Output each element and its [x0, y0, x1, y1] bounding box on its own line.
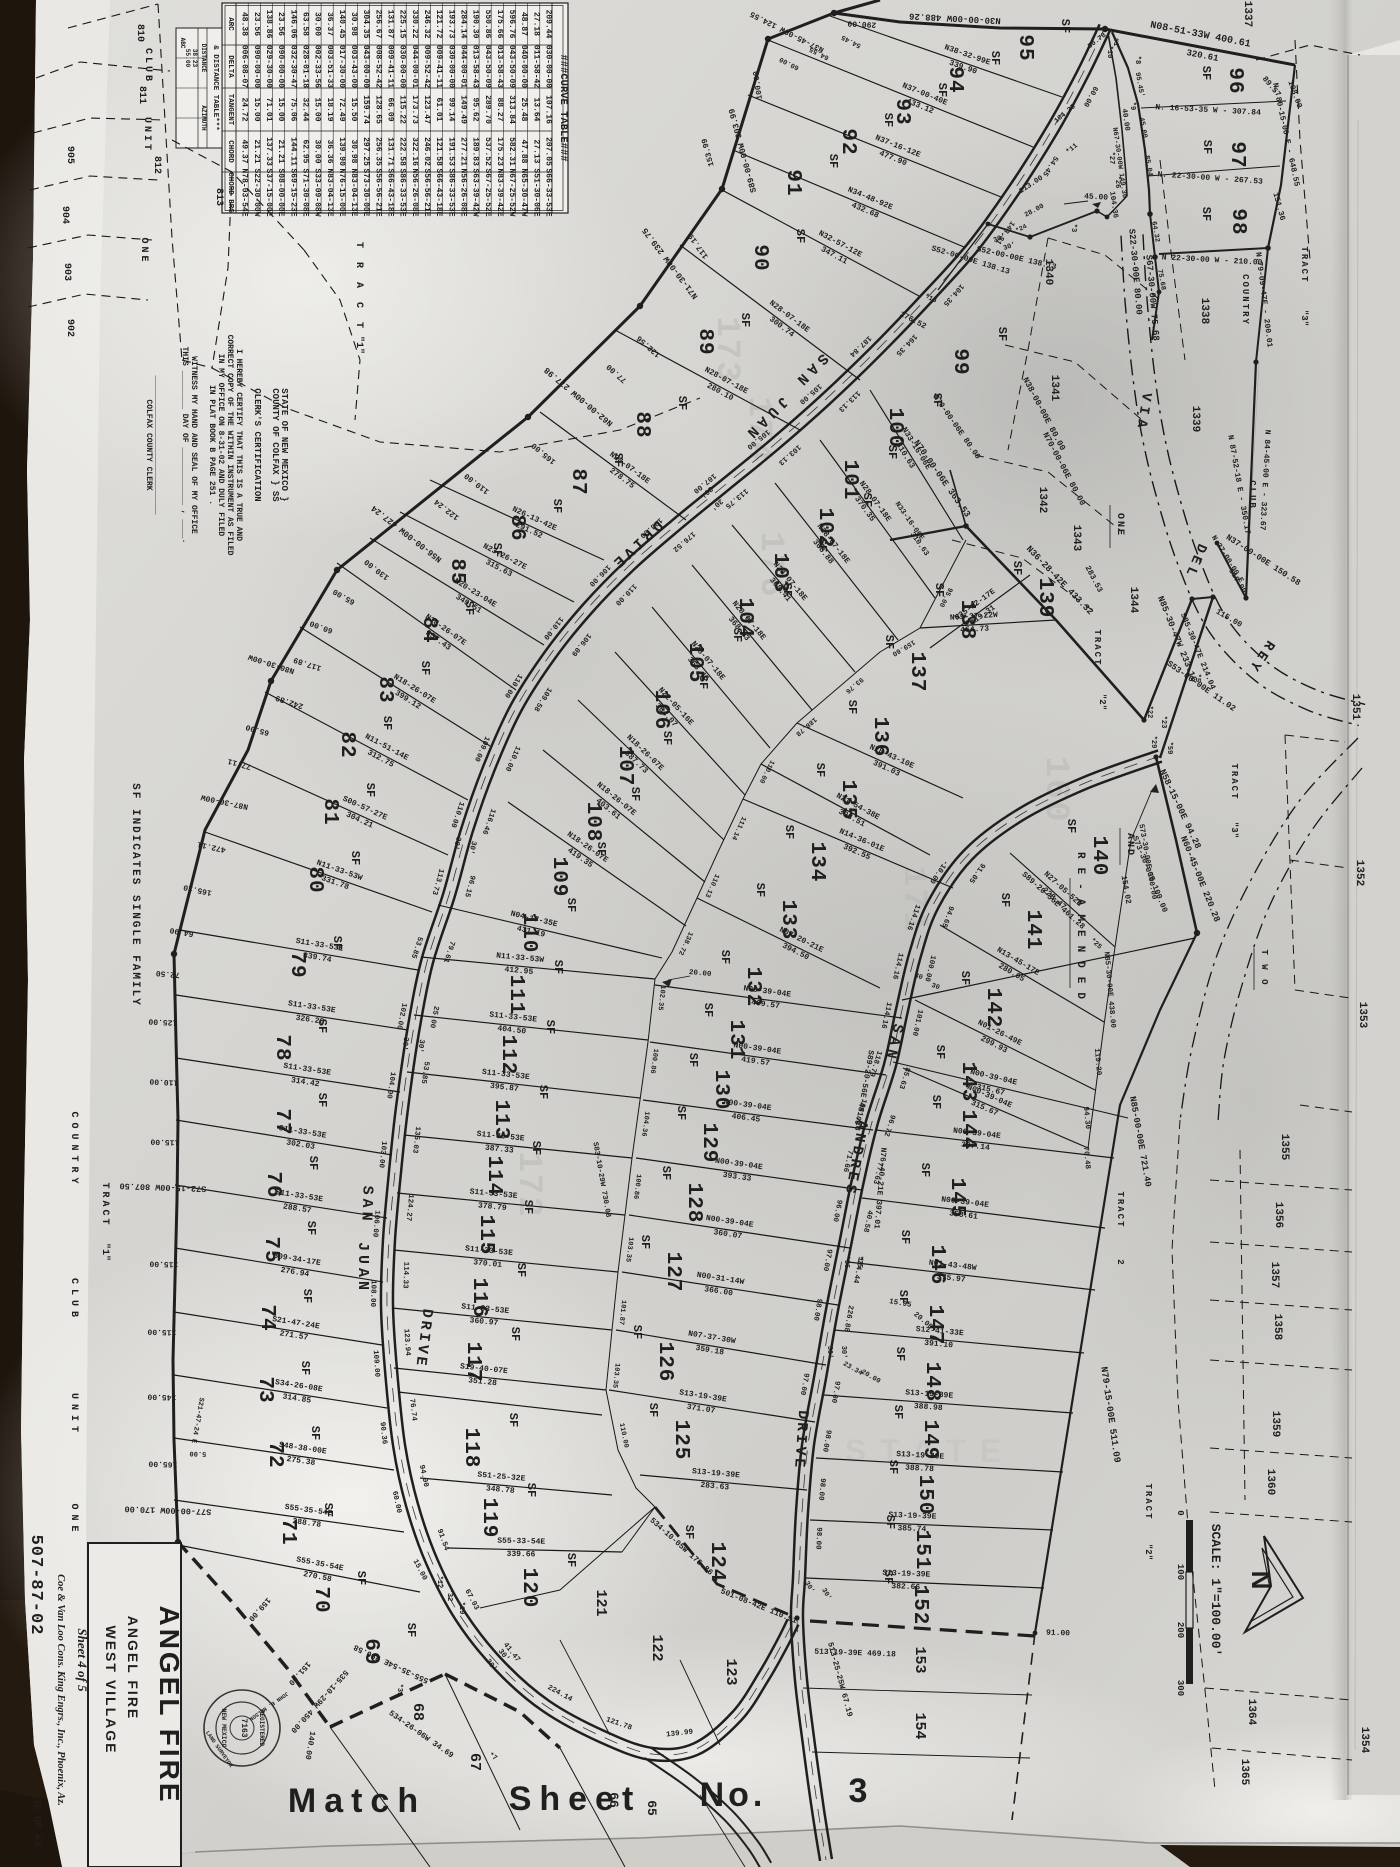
svg-text:1353: 1353	[1356, 1002, 1368, 1029]
svg-text:SF: SF	[363, 783, 377, 797]
svg-text:SF: SF	[660, 731, 674, 745]
svg-text:011-58-42: 011-58-42	[531, 45, 540, 88]
svg-text:No.: No.	[700, 1776, 767, 1814]
svg-text:15.50: 15.50	[349, 97, 358, 121]
svg-text:97: 97	[1225, 141, 1248, 168]
svg-text:SF: SF	[686, 1053, 700, 1067]
svg-text:23.56: 23.56	[252, 12, 261, 36]
svg-text:SF: SF	[330, 936, 344, 950]
svg-text:SF: SF	[611, 453, 625, 467]
svg-text:1343: 1343	[1070, 525, 1082, 552]
svg-text:ONE: ONE	[1114, 513, 1125, 537]
svg-text:*26: *26	[1113, 176, 1121, 189]
svg-text:CLERK'S CERTIFICATION: CLERK'S CERTIFICATION	[252, 388, 262, 501]
svg-text:330.22: 330.22	[410, 10, 419, 39]
svg-text:191.53: 191.53	[446, 137, 455, 166]
svg-text:193.73: 193.73	[446, 10, 455, 39]
svg-text:SF: SF	[1199, 66, 1213, 80]
svg-text:*10: *10	[1105, 46, 1113, 59]
svg-text:*35: *35	[842, 1256, 850, 1269]
svg-text:SF: SF	[793, 229, 807, 243]
svg-text:91.00: 91.00	[1046, 1629, 1071, 1639]
svg-text:95.62: 95.62	[471, 97, 480, 121]
svg-text:27.18: 27.18	[531, 12, 540, 36]
svg-text:TRACT: TRACT	[99, 1182, 110, 1227]
svg-text:COUNTRY: COUNTRY	[68, 1111, 79, 1188]
svg-text:ANGEL FIRE: ANGEL FIRE	[125, 1616, 141, 1721]
svg-text:009-41-11: 009-41-11	[386, 45, 395, 88]
svg-text:COLFAX COUNTY CLERK: COLFAX COUNTY CLERK	[144, 399, 153, 490]
svg-text:THIS ________ DAY OF _________: THIS ________ DAY OF ____________ , ____…	[180, 347, 189, 544]
svg-text:74: 74	[255, 1304, 278, 1331]
svg-text:67: 67	[466, 1753, 483, 1771]
svg-text:009-41-11: 009-41-11	[434, 45, 443, 88]
svg-text:SF: SF	[885, 445, 899, 459]
svg-text:131.87: 131.87	[386, 10, 395, 39]
svg-text:81: 81	[318, 798, 341, 825]
svg-text:SF: SF	[780, 583, 794, 597]
svg-text:84: 84	[417, 616, 440, 643]
svg-text:582.31: 582.31	[507, 137, 516, 166]
svg-text:1354: 1354	[1358, 1727, 1370, 1754]
svg-text:009-52-42: 009-52-42	[422, 45, 431, 88]
svg-text:5.00: 5.00	[189, 1449, 206, 1458]
svg-text:030-00-00: 030-00-00	[446, 45, 455, 88]
svg-text:246.02: 246.02	[422, 137, 431, 166]
svg-text:SF: SF	[536, 1085, 550, 1099]
svg-text:152: 152	[908, 1585, 931, 1626]
svg-text:N56-26-08E: N56-26-08E	[410, 168, 419, 216]
svg-text:1342: 1342	[1036, 487, 1048, 513]
svg-text:117: 117	[461, 1342, 484, 1383]
svg-text:SF: SF	[730, 628, 744, 642]
svg-text:ANGEL FIRE: ANGEL FIRE	[154, 1605, 185, 1804]
svg-text:SF: SF	[886, 1460, 900, 1474]
svg-text:109: 109	[547, 857, 570, 898]
svg-text:SF: SF	[404, 1623, 418, 1637]
svg-text:SF: SF	[315, 1093, 329, 1107]
svg-text:SF: SF	[1058, 19, 1072, 33]
svg-text:339.66: 339.66	[506, 1550, 535, 1560]
svg-text:DISTANCE: DISTANCE	[200, 44, 207, 73]
svg-text:*19: *19	[457, 1602, 465, 1615]
svg-text:SF: SF	[891, 1405, 905, 1419]
svg-text:SF: SF	[594, 842, 608, 856]
svg-text:101: 101	[838, 460, 861, 501]
svg-text:115.00: 115.00	[147, 1326, 176, 1336]
svg-text:146: 146	[925, 1245, 948, 1286]
svg-text:120: 120	[517, 1568, 540, 1609]
svg-text:SF: SF	[718, 950, 732, 964]
svg-text:114: 114	[482, 1156, 505, 1197]
svg-text:148: 148	[920, 1362, 943, 1403]
svg-text:SF: SF	[933, 1045, 947, 1059]
svg-text:15.00: 15.00	[252, 97, 261, 121]
svg-text:87: 87	[566, 468, 589, 495]
svg-text:*8: *8	[1133, 56, 1141, 64]
svg-text:144: 144	[956, 1110, 979, 1151]
svg-text:S08-00-00E: S08-00-00E	[276, 168, 285, 216]
svg-text:ONE: ONE	[68, 1503, 79, 1536]
svg-text:SF: SF	[659, 1166, 673, 1180]
svg-text:13.64: 13.64	[531, 97, 540, 121]
svg-text:151: 151	[910, 1530, 933, 1571]
svg-text:SF: SF	[882, 635, 896, 649]
svg-text:1341: 1341	[1048, 375, 1060, 402]
svg-text:T W O: T W O	[1259, 949, 1269, 986]
svg-text:N83-39-42E: N83-39-42E	[495, 168, 504, 216]
svg-text:SF: SF	[675, 396, 689, 410]
svg-text:040-00-00: 040-00-00	[519, 45, 528, 88]
svg-text:149: 149	[918, 1420, 941, 1461]
svg-text:222.58: 222.58	[398, 137, 407, 166]
svg-text:139.90: 139.90	[337, 137, 346, 166]
svg-text:SF: SF	[898, 1230, 912, 1244]
svg-text:18.19: 18.19	[325, 97, 334, 121]
svg-text:904: 904	[59, 206, 70, 224]
svg-text:121.58: 121.58	[434, 137, 443, 166]
svg-text:N67-25-52W: N67-25-52W	[507, 168, 516, 216]
svg-text:SF: SF	[1010, 561, 1024, 575]
svg-text:145.00: 145.00	[147, 1391, 176, 1401]
svg-text:62.95: 62.95	[300, 139, 309, 163]
svg-text:21.21: 21.21	[252, 139, 261, 163]
svg-text:TRACT: TRACT	[1143, 1483, 1153, 1520]
svg-text:65: 65	[644, 1800, 659, 1816]
svg-text:126: 126	[653, 1342, 676, 1383]
svg-text:UNIT: UNIT	[68, 1393, 79, 1437]
svg-text:76: 76	[261, 1171, 284, 1198]
svg-text:029-30-00: 029-30-00	[264, 45, 273, 88]
svg-text:75: 75	[259, 1236, 282, 1263]
svg-text:55.00: 55.00	[184, 49, 191, 68]
svg-text:99: 99	[948, 348, 971, 375]
svg-text:030-00-00: 030-00-00	[544, 45, 553, 88]
svg-text:122: 122	[648, 1634, 665, 1661]
svg-text:159.74: 159.74	[361, 95, 370, 124]
svg-text:SF: SF	[304, 1221, 318, 1235]
svg-text:SF: SF	[881, 1570, 895, 1584]
svg-text:36.37: 36.37	[325, 12, 334, 36]
svg-text:47.88: 47.88	[519, 139, 528, 163]
svg-text:SF: SF	[935, 83, 949, 97]
svg-text:141: 141	[1021, 910, 1044, 951]
svg-text:905: 905	[64, 146, 75, 164]
svg-text:ARC: ARC	[226, 17, 234, 31]
svg-text:044-00-01: 044-00-01	[458, 45, 467, 88]
svg-text:30': 30'	[839, 1346, 847, 1359]
svg-text:NEW MEXICO: NEW MEXICO	[220, 1708, 227, 1747]
svg-text:131.71: 131.71	[386, 137, 395, 166]
svg-text:132: 132	[741, 967, 764, 1008]
svg-text:COUNTY OF COLFAX } SS: COUNTY OF COLFAX } SS	[270, 388, 280, 502]
svg-text:903: 903	[61, 263, 72, 281]
svg-text:SF: SF	[550, 499, 564, 513]
svg-text:113: 113	[489, 1100, 512, 1141]
svg-text:SF: SF	[988, 51, 1002, 65]
svg-text:S86-33-53E: S86-33-53E	[446, 168, 455, 216]
svg-text:Sheet: Sheet	[509, 1780, 642, 1818]
svg-text:73: 73	[253, 1376, 276, 1403]
svg-text:36.36: 36.36	[325, 139, 334, 163]
svg-text:*59: *59	[1165, 742, 1173, 755]
svg-text:175.66: 175.66	[495, 10, 504, 39]
svg-text:63.58: 63.58	[300, 12, 309, 36]
svg-text:225.15: 225.15	[398, 10, 407, 39]
svg-text:507-87-02: 507-87-02	[26, 1535, 45, 1636]
svg-text:89: 89	[693, 328, 716, 355]
svg-text:77: 77	[270, 1108, 293, 1135]
svg-text:140.45: 140.45	[337, 10, 346, 39]
svg-text:S51-30-06E: S51-30-06E	[531, 168, 540, 216]
svg-text:154: 154	[911, 1712, 928, 1739]
svg-text:3: 3	[849, 1772, 868, 1810]
svg-text:SF: SF	[932, 583, 946, 597]
svg-text:SF: SF	[321, 1503, 335, 1517]
svg-text:133: 133	[776, 900, 799, 941]
svg-text:115.00: 115.00	[150, 1136, 179, 1146]
svg-text:SF: SF	[630, 1325, 644, 1339]
svg-text:108.00: 108.00	[368, 1280, 377, 1308]
svg-text:003-43-00: 003-43-00	[349, 45, 358, 88]
svg-text:SF: SF	[826, 154, 840, 168]
svg-text:70: 70	[309, 1586, 332, 1613]
svg-text:107: 107	[613, 746, 636, 787]
svg-text:SF: SF	[508, 1327, 522, 1341]
svg-text:"3": "3"	[1299, 310, 1309, 326]
svg-text:45.00: 45.00	[1084, 192, 1109, 202]
svg-text:1359: 1359	[1269, 1411, 1281, 1437]
svg-text:142: 142	[981, 988, 1004, 1029]
svg-text:SF: SF	[298, 1361, 312, 1375]
svg-text:25.48: 25.48	[519, 97, 528, 121]
svg-text:DELTA: DELTA	[226, 55, 234, 78]
svg-text:300: 300	[1175, 1680, 1185, 1696]
svg-text:99.14: 99.14	[446, 97, 455, 121]
svg-text:SF: SF	[306, 1156, 320, 1170]
svg-text:SF: SF	[883, 1515, 897, 1529]
svg-text:"1": "1"	[99, 1243, 111, 1261]
svg-text:32 OF 43: 32 OF 43	[31, 1798, 42, 1846]
svg-text:1364: 1364	[1245, 1699, 1257, 1726]
svg-text:246.32: 246.32	[422, 10, 431, 39]
svg-text:15.00: 15.00	[313, 97, 322, 121]
svg-text:N83-04-13E: N83-04-13E	[325, 168, 334, 216]
svg-text:123: 123	[722, 1658, 739, 1685]
svg-text:090-00-00: 090-00-00	[252, 45, 261, 88]
svg-text:028-01-18: 028-01-18	[300, 45, 309, 88]
svg-text:107.16: 107.16	[544, 95, 553, 124]
svg-text:N78-03-54E: N78-03-54E	[240, 168, 249, 216]
svg-text:SF: SF	[753, 883, 767, 897]
svg-text:SF: SF	[696, 675, 710, 689]
svg-text:AZIMUTH: AZIMUTH	[200, 105, 207, 131]
svg-text:200: 200	[1175, 1622, 1185, 1638]
svg-text:68: 68	[409, 1703, 426, 1721]
svg-text:88.27: 88.27	[495, 97, 504, 121]
svg-text:"2": "2"	[1143, 1544, 1153, 1560]
svg-text:78: 78	[270, 1034, 293, 1061]
svg-text:0: 0	[1175, 1510, 1185, 1515]
svg-text:SF: SF	[738, 313, 752, 327]
svg-text:1352: 1352	[1353, 860, 1365, 886]
svg-text:109.00: 109.00	[371, 1350, 381, 1378]
svg-text:SF: SF	[354, 1571, 368, 1585]
svg-text:90: 90	[748, 244, 771, 271]
svg-text:SF: SF	[506, 1413, 520, 1427]
svg-text:80: 80	[303, 866, 326, 893]
svg-text:SCALE: 1"=100.00': SCALE: 1"=100.00'	[1208, 1524, 1223, 1657]
svg-text:"1": "1"	[353, 336, 365, 354]
svg-text:118: 118	[459, 1428, 482, 1469]
svg-text:SF: SF	[543, 1020, 557, 1034]
svg-text:SF: SF	[646, 1403, 660, 1417]
svg-text:SF: SF	[881, 113, 895, 127]
svg-text:256.35: 256.35	[373, 137, 382, 166]
svg-text:85: 85	[445, 558, 468, 585]
svg-text:61.01: 61.01	[434, 97, 443, 121]
svg-text:ONE: ONE	[138, 237, 149, 264]
svg-text:30': 30'	[825, 1346, 833, 1359]
svg-text:48.87: 48.87	[519, 12, 528, 36]
svg-text:15.00: 15.00	[276, 97, 285, 121]
svg-text:N76-15-00E: N76-15-00E	[337, 168, 346, 216]
svg-text:CLUB: CLUB	[1247, 480, 1257, 510]
svg-text:013-58-43: 013-58-43	[471, 45, 480, 88]
svg-text:SF: SF	[674, 1106, 688, 1120]
svg-text:115.00: 115.00	[149, 1258, 178, 1268]
svg-text:*23: *23	[1159, 716, 1167, 729]
svg-text:121.72: 121.72	[434, 10, 443, 39]
svg-text:115: 115	[474, 1215, 497, 1256]
svg-text:98.00: 98.00	[813, 1527, 822, 1550]
svg-text:SF: SF	[462, 601, 476, 615]
svg-text:CORRECT COPY OF THE WITHIN INS: CORRECT COPY OF THE WITHIN INSTRUMENT AS…	[225, 335, 234, 556]
svg-text:114.33: 114.33	[400, 1261, 409, 1289]
svg-text:SF: SF	[958, 971, 972, 985]
svg-text:137: 137	[905, 652, 928, 693]
svg-text:017-30-00: 017-30-00	[337, 45, 346, 88]
svg-text:550.86: 550.86	[483, 10, 492, 39]
svg-text:*3: *3	[1069, 224, 1077, 232]
svg-text:537.52: 537.52	[483, 137, 492, 166]
svg-text:91: 91	[781, 169, 804, 196]
svg-text:SF: SF	[300, 1289, 314, 1303]
svg-text:129: 129	[697, 1123, 720, 1164]
svg-text:284.14: 284.14	[458, 10, 467, 39]
svg-text:N56-26-08E: N56-26-08E	[458, 168, 467, 216]
svg-text:115.22: 115.22	[398, 95, 407, 124]
svg-text:119: 119	[477, 1498, 500, 1539]
svg-text:*9: *9	[1128, 102, 1136, 110]
svg-text:145: 145	[945, 1178, 968, 1219]
svg-text:153: 153	[911, 1646, 928, 1673]
svg-text:1338: 1338	[1198, 298, 1210, 325]
svg-text:106: 106	[649, 690, 672, 731]
svg-text:138.86: 138.86	[264, 10, 273, 39]
svg-text:SF: SF	[929, 1095, 943, 1109]
svg-text:30.00: 30.00	[313, 139, 322, 163]
svg-text:110: 110	[517, 913, 540, 954]
svg-text:SF: SF	[529, 1141, 543, 1155]
svg-text:"2": "2"	[1097, 694, 1107, 710]
svg-text:TRACT: TRACT	[1229, 763, 1239, 800]
svg-text:165.00: 165.00	[148, 1458, 177, 1468]
svg-text:297.25: 297.25	[361, 137, 370, 166]
svg-text:130: 130	[709, 1070, 732, 1111]
svg-text:RE-AMENDED: RE-AMENDED	[1074, 852, 1086, 1008]
svg-text:289.70: 289.70	[483, 95, 492, 124]
svg-text:30.00: 30.00	[313, 12, 322, 36]
svg-text:48.38: 48.38	[240, 12, 249, 36]
svg-text:95: 95	[1013, 34, 1036, 61]
svg-text:030-00-00: 030-00-00	[398, 45, 407, 88]
svg-text:S33-09-08W: S33-09-08W	[313, 168, 322, 216]
svg-text:96: 96	[1223, 67, 1246, 94]
svg-text:32.44: 32.44	[300, 97, 309, 121]
svg-text:108: 108	[581, 802, 604, 843]
svg-text:S66-43-18E: S66-43-18E	[434, 168, 443, 216]
svg-text:27.13: 27.13	[531, 139, 540, 163]
svg-text:143: 143	[956, 1062, 979, 1103]
svg-text:IN MY OFFICE ON 8-31-02: IN MY OFFICE ON 8-31-02 AND DULY FILED	[216, 354, 225, 537]
svg-text:138: 138	[955, 600, 978, 641]
svg-text:*12: *12	[435, 1576, 443, 1589]
svg-text:1339: 1339	[1189, 406, 1201, 432]
svg-text:596.76: 596.76	[507, 10, 516, 39]
svg-text:1358: 1358	[1271, 1314, 1283, 1341]
svg-text:SF: SF	[514, 1263, 528, 1277]
svg-text:30.98: 30.98	[349, 12, 358, 36]
svg-text:136: 136	[868, 717, 891, 758]
svg-text:WEST VILLAGE: WEST VILLAGE	[103, 1626, 119, 1755]
svg-text:COUNTRY: COUNTRY	[1240, 274, 1250, 326]
svg-text:###CURVE TABLE###: ###CURVE TABLE###	[557, 54, 569, 161]
svg-text:SF: SF	[564, 1553, 578, 1567]
svg-text:128.65: 128.65	[373, 95, 382, 124]
svg-text:SF: SF	[380, 716, 394, 730]
svg-text:*31: *31	[395, 1684, 403, 1697]
svg-text:121: 121	[592, 1589, 609, 1616]
svg-text:144.11: 144.11	[288, 137, 297, 166]
svg-text:131: 131	[724, 1020, 747, 1061]
svg-text:S86-33-53E: S86-33-53E	[398, 168, 407, 216]
svg-text:043-50-09: 043-50-09	[483, 45, 492, 88]
svg-text:290.00: 290.00	[847, 18, 876, 29]
svg-text:110.00: 110.00	[149, 1076, 178, 1087]
svg-text:21.21: 21.21	[276, 139, 285, 163]
svg-text:SF: SF	[524, 1483, 538, 1497]
svg-text:SF: SF	[1199, 207, 1213, 221]
svg-text:SF: SF	[701, 1003, 715, 1017]
svg-text:125: 125	[669, 1420, 692, 1461]
svg-text:N65-30-47W: N65-30-47W	[519, 168, 528, 216]
svg-text:72.49: 72.49	[337, 97, 346, 121]
svg-text:24.72: 24.72	[240, 97, 249, 121]
svg-text:SF: SF	[682, 1525, 696, 1539]
svg-text:008-52-42: 008-52-42	[373, 45, 382, 88]
svg-text:*27: *27	[1107, 152, 1115, 165]
svg-text:S63-39-42W: S63-39-42W	[471, 168, 480, 216]
svg-text:CLUB: CLUB	[142, 48, 153, 84]
svg-text:TRACT: TRACT	[1299, 246, 1309, 283]
svg-text:SF: SF	[1064, 819, 1078, 833]
svg-text:38.23: 38.23	[191, 49, 198, 68]
svg-text:SF: SF	[418, 661, 432, 675]
svg-text:043-50-09: 043-50-09	[507, 45, 516, 88]
svg-text:032-30-47: 032-30-47	[288, 45, 297, 88]
svg-text:207.05: 207.05	[544, 137, 553, 166]
